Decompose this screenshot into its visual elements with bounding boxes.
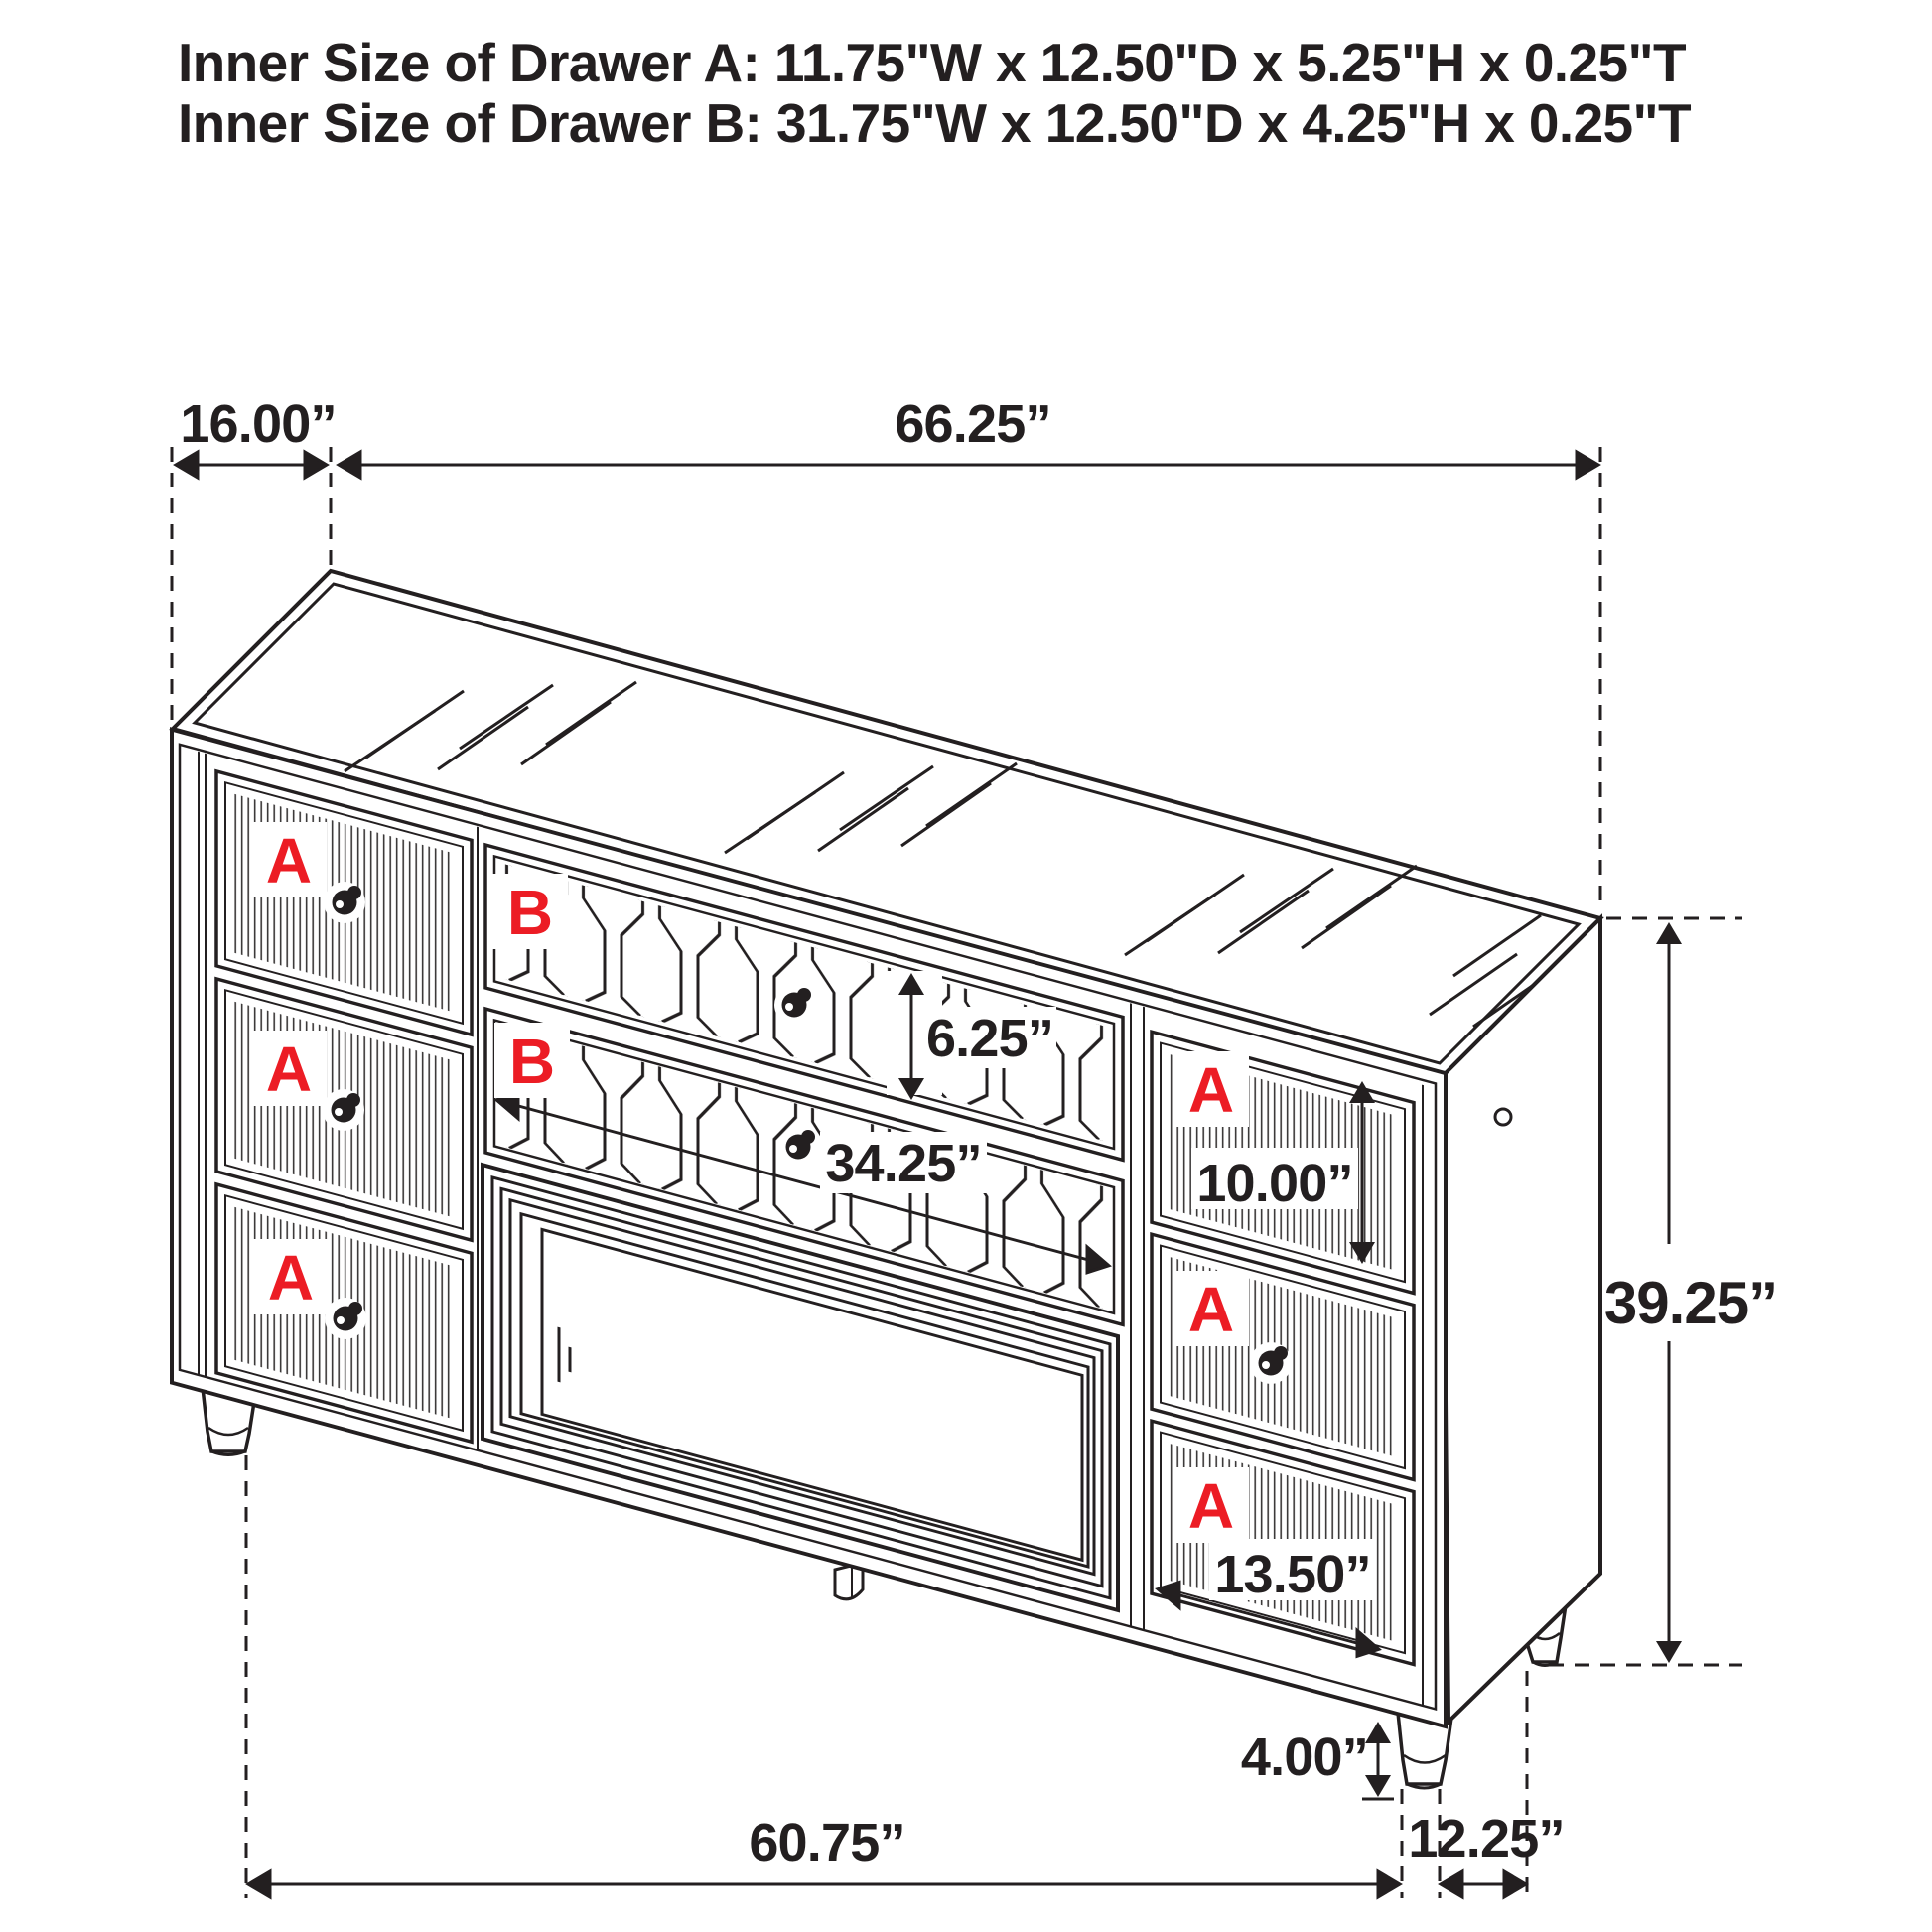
svg-text:Inner Size of Drawer A: 11.75": Inner Size of Drawer A: 11.75"W x 12.50"… xyxy=(178,32,1686,93)
svg-text:10.00”: 10.00” xyxy=(1196,1154,1352,1213)
svg-text:12.25”: 12.25” xyxy=(1408,1809,1564,1868)
svg-text:34.25”: 34.25” xyxy=(825,1134,981,1193)
svg-text:6.25”: 6.25” xyxy=(926,1009,1053,1068)
svg-text:66.25”: 66.25” xyxy=(895,394,1050,454)
svg-text:B: B xyxy=(507,877,553,948)
svg-text:16.00”: 16.00” xyxy=(180,394,336,454)
svg-text:A: A xyxy=(1188,1470,1234,1542)
svg-text:A: A xyxy=(1188,1274,1234,1345)
svg-text:A: A xyxy=(266,825,312,897)
svg-text:39.25”: 39.25” xyxy=(1604,1270,1777,1336)
svg-text:A: A xyxy=(268,1242,314,1313)
svg-text:13.50”: 13.50” xyxy=(1214,1545,1370,1604)
svg-text:4.00”: 4.00” xyxy=(1241,1727,1368,1787)
svg-text:B: B xyxy=(509,1026,555,1097)
svg-text:60.75”: 60.75” xyxy=(749,1813,904,1872)
svg-text:A: A xyxy=(1188,1054,1234,1126)
svg-text:Inner Size of Drawer B: 31.75": Inner Size of Drawer B: 31.75"W x 12.50"… xyxy=(178,92,1691,154)
svg-text:A: A xyxy=(266,1034,312,1105)
